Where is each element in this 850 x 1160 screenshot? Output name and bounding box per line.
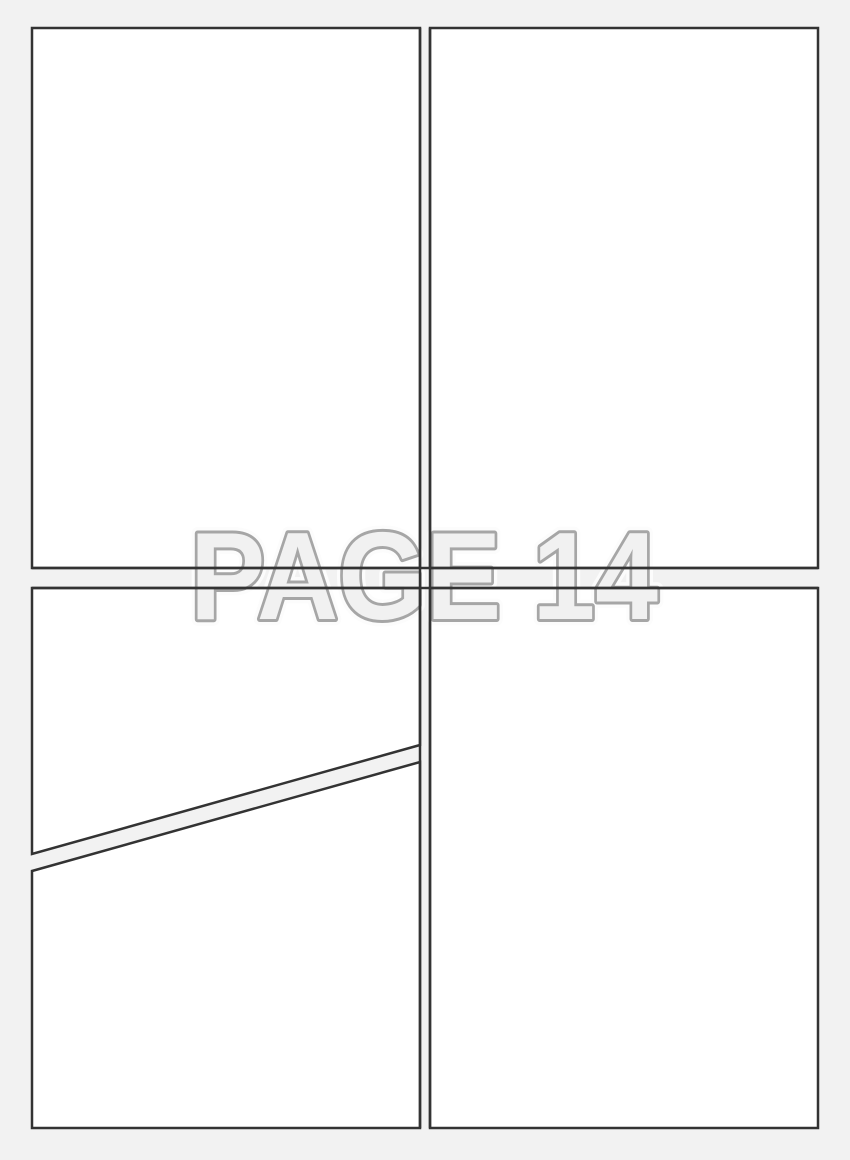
panel-top-right [430, 28, 818, 568]
page-label-text: PAGE 14 [190, 508, 658, 646]
panel-top-left [32, 28, 420, 568]
panel-bottom-right [430, 588, 818, 1128]
comic-template-canvas: PAGE 14 PAGE 14 [0, 0, 850, 1160]
comic-page-template: PAGE 14 PAGE 14 [0, 0, 850, 1160]
page-label: PAGE 14 PAGE 14 [190, 508, 658, 646]
